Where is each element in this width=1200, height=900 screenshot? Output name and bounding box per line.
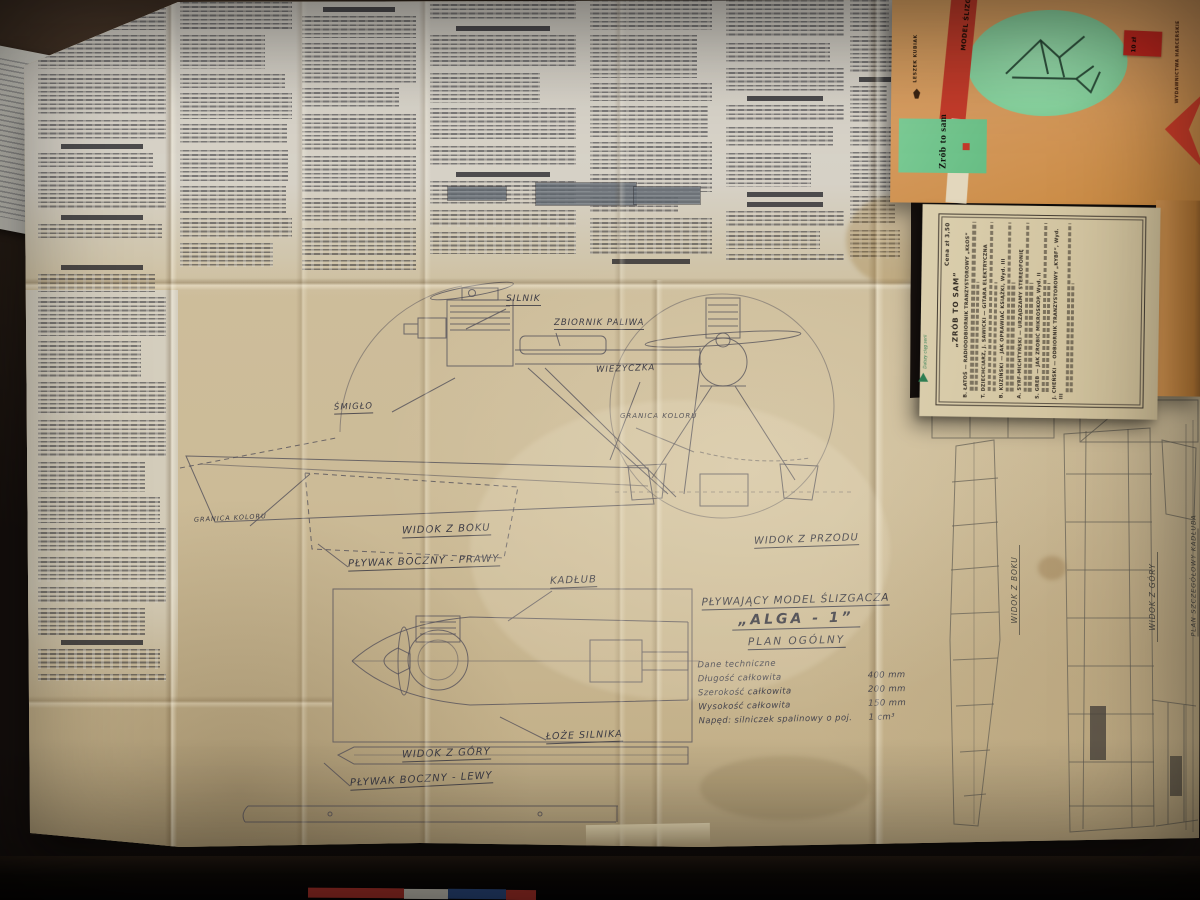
front-view-drawing (610, 294, 855, 518)
magazine-edge-sliver (506, 890, 536, 900)
text-paragraph (38, 462, 145, 492)
text-paragraph (180, 150, 288, 181)
text-paragraph (38, 35, 166, 69)
text-column (302, 2, 416, 274)
book-list-item: S. GREB — JAK ZROBIĆ MIKROSKOP, Wyd. II (1034, 223, 1052, 399)
mini-logo-note: Dalszy ciąg serii (922, 335, 927, 369)
book-list-item: B. KUZIŃSKI — JAK OPRAWIAĆ KSIĄŻKI, Wyd.… (998, 222, 1016, 398)
text-column (38, 260, 166, 690)
printed-photo-block (448, 187, 506, 200)
book-list-item-title: A. SYRF-MICHTYŃSKI — URZĄDZAMY STEREOFON… (1016, 223, 1025, 399)
book-list-item-desc (1070, 283, 1075, 392)
book-list-item-title: J. CHEŃSKI — ODBIORNIK TRANZYSTOROWY „KY… (1052, 223, 1067, 399)
section-heading-line (612, 259, 690, 264)
model-sketch (965, 7, 1129, 120)
text-paragraph (38, 587, 166, 603)
text-paragraph (302, 114, 416, 151)
text-paragraph (38, 274, 155, 292)
printed-photo-block (634, 187, 700, 204)
label-plywak-boczny-prawy: PŁYWAK BOCZNY - PRAWY (348, 553, 500, 571)
tech-data-label: Napęd: silniczek spalinowy o poj. (698, 713, 852, 726)
book-list-item: B. ŁATOŚ — RADIOODBIORNIK TRANZYSTOROWY … (963, 222, 981, 398)
text-paragraph (38, 172, 166, 210)
book-list-item-desc (1028, 283, 1033, 392)
tech-data-value: 400 mm (868, 670, 924, 681)
text-paragraph (726, 0, 844, 38)
section-heading-line (61, 640, 143, 645)
text-paragraph (38, 341, 141, 377)
text-paragraph (430, 35, 576, 68)
price-sticker-text: 10 zł (1131, 37, 1138, 53)
text-paragraph (38, 649, 160, 669)
label-detail-widok-z-boku: WIDOK Z BOKU (1010, 545, 1020, 635)
paper-highlight (470, 400, 890, 700)
label-detail-widok-z-gory: WIDOK Z GÓRY (1148, 552, 1158, 642)
text-paragraph (726, 231, 820, 249)
section-heading-line (747, 192, 823, 197)
label-widok-z-przodu: WIDOK Z PRZODU (754, 532, 859, 549)
tech-data-label: Szerokość całkowita (698, 686, 792, 698)
tech-data-rows: Długość całkowita 400 mm Szerokość całko… (698, 670, 925, 727)
text-paragraph (38, 557, 166, 582)
cover-ellipse-illustration (965, 7, 1129, 120)
text-paragraph (590, 106, 708, 137)
label-plywak-boczny-lewy: PŁYWAK BOCZNY - LEWY (350, 770, 493, 790)
back-cover-mini-logo: Dalszy ciąg serii (914, 329, 939, 395)
text-paragraph (430, 0, 576, 21)
book-list-item-desc (1024, 223, 1030, 392)
plan-title-line3: PLAN OGÓLNY (748, 634, 846, 651)
label-granica-koloru-right: GRANICA KOLORU (620, 412, 697, 420)
book-list-item: J. CHEŃSKI — ODBIORNIK TRANZYSTOROWY „KY… (1052, 223, 1076, 399)
text-paragraph (302, 43, 416, 83)
tech-data-row: Szerokość całkowita 200 mm (698, 684, 924, 699)
text-paragraph (302, 16, 416, 38)
section-heading-line (747, 96, 823, 101)
section-heading-line (456, 172, 549, 177)
detail-parts-drawings (932, 400, 1198, 832)
label-plan-szczegolowy-kadluba: PLAN SZCZEGÓŁOWY KADŁUBA (1190, 529, 1199, 637)
text-paragraph (430, 146, 576, 167)
tech-data-label: Długość całkowita (698, 673, 782, 685)
section-heading-line (61, 144, 143, 149)
logo-red-accent (963, 143, 970, 150)
text-paragraph (726, 68, 844, 91)
section-heading-line (323, 7, 396, 12)
text-paragraph (430, 232, 576, 254)
text-paragraph (180, 74, 285, 88)
text-paragraph (850, 196, 895, 225)
text-paragraph (850, 127, 895, 147)
label-silnik: SILNIK (506, 294, 541, 306)
paper-stain (1038, 556, 1066, 580)
text-paragraph (850, 0, 889, 31)
text-paragraph (180, 218, 292, 238)
text-paragraph (38, 382, 166, 415)
book-list-item-desc (970, 222, 976, 391)
text-paragraph (180, 243, 273, 267)
book-list-item-desc (974, 282, 979, 391)
book-list-item-title: B. KUZIŃSKI — JAK OPRAWIAĆ KSIĄŻKI, Wyd.… (998, 222, 1007, 398)
text-paragraph (590, 218, 712, 254)
book-list-item-desc (1065, 223, 1071, 392)
tech-data-row: Długość całkowita 400 mm (698, 670, 924, 685)
text-column (180, 2, 292, 274)
series-logo-text: Zrób to sam (938, 114, 949, 169)
text-column (590, 0, 712, 277)
tech-data-value: 150 mm (868, 698, 924, 709)
text-column (726, 0, 844, 278)
text-paragraph (726, 105, 844, 122)
tech-data-heading: Dane techniczne (697, 656, 923, 671)
label-smiglo: ŚMIGŁO (334, 401, 373, 414)
text-paragraph (38, 297, 166, 336)
text-paragraph (302, 156, 416, 193)
magazine-edge-sliver (404, 889, 448, 899)
section-heading-line (859, 77, 891, 82)
text-paragraph (180, 35, 265, 69)
text-paragraph (302, 228, 416, 255)
back-cover-book-list: B. ŁATOŚ — RADIOODBIORNIK TRANZYSTOROWY … (963, 219, 1076, 403)
text-paragraph (726, 211, 844, 226)
text-paragraph (38, 420, 166, 457)
book-list-item-desc (988, 222, 994, 391)
zrob-to-sam-booklet: MODEL ŚLIZGACZA „ALGA-1” LESZEK KUBIAK Z… (888, 0, 1200, 428)
mini-logo-triangle-icon (918, 373, 928, 382)
text-paragraph (180, 186, 286, 213)
booklet-cover-right-margin (1154, 200, 1200, 397)
label-wiezyczka: WIEŻYCZKA (596, 363, 656, 375)
text-paragraph (726, 254, 844, 260)
text-paragraph (302, 260, 416, 270)
tech-data-row: Wysokość całkowita 150 mm (698, 698, 924, 713)
label-loze-silnika: ŁOŻE SILNIKA (546, 729, 623, 745)
text-paragraph (850, 86, 887, 122)
book-list-item-title: S. GREB — JAK ZROBIĆ MIKROSKOP, Wyd. II (1034, 223, 1043, 399)
table-bottom-band (0, 856, 1200, 900)
text-paragraph (38, 224, 162, 238)
text-paragraph (302, 198, 416, 223)
plan-title-block: PŁYWAJĄCY MODEL ŚLIZGACZA „ALGA - 1” PLA… (687, 585, 905, 652)
magazine-edge-sliver (448, 889, 506, 899)
section-heading-line (61, 215, 143, 220)
text-paragraph (302, 88, 399, 109)
text-paragraph (180, 93, 292, 119)
section-heading-line (61, 265, 143, 270)
cover-red-arrow-icon (1158, 87, 1200, 173)
back-cover-price: Cena zł 3,50 (943, 222, 952, 400)
text-paragraph (590, 83, 712, 101)
text-paragraph (38, 153, 153, 167)
book-list-item: T. DZIECHCIARZ, J. SAWICKI — GITARA ELEK… (980, 222, 998, 398)
back-cover-series-heading: „ZRÓB TO SAM” (950, 219, 962, 401)
section-heading-line (456, 26, 549, 31)
text-paragraph (430, 210, 576, 227)
book-list-item-desc (992, 282, 997, 391)
text-paragraph (430, 108, 576, 141)
text-paragraph (590, 0, 712, 30)
label-widok-z-boku: WIDOK Z BOKU (402, 522, 491, 538)
text-paragraph (38, 608, 145, 635)
fold-crease (0, 696, 332, 708)
printed-photo-block (536, 183, 636, 205)
cover-author-text: LESZEK KUBIAK (913, 34, 919, 82)
tech-data-block: Dane techniczne Długość całkowita 400 mm… (697, 656, 924, 731)
text-paragraph (430, 73, 540, 103)
text-column (430, 0, 576, 276)
text-paragraph (38, 74, 166, 115)
text-column (38, 8, 166, 252)
text-paragraph (38, 674, 166, 681)
book-list-item-desc (1006, 222, 1012, 391)
text-paragraph (180, 124, 287, 145)
text-paragraph (726, 127, 833, 148)
label-widok-z-gory: WIDOK Z GÓRY (402, 746, 491, 762)
price-sticker: 10 zł (1123, 30, 1162, 57)
book-list-item-desc (1010, 282, 1015, 391)
back-cover-frame: Cena zł 3,50 „ZRÓB TO SAM” B. ŁATOŚ — RA… (935, 213, 1146, 408)
tech-data-value: 200 mm (868, 684, 924, 695)
book-list-item-desc (1046, 283, 1051, 392)
section-heading-line (747, 202, 823, 207)
text-paragraph (38, 497, 160, 523)
text-paragraph (726, 43, 830, 63)
text-paragraph (38, 120, 166, 139)
text-paragraph (726, 153, 811, 187)
book-list-item-title: B. ŁATOŚ — RADIOODBIORNIK TRANZYSTOROWY … (963, 222, 972, 398)
tech-data-value: 1 cm³ (868, 712, 924, 723)
text-paragraph (38, 528, 166, 552)
magazine-edge-sliver (308, 888, 404, 899)
book-list-item-title: T. DZIECHCIARZ, J. SAWICKI — GITARA ELEK… (980, 222, 989, 398)
label-zbiornik-paliwa: ZBIORNIK PALIWA (554, 318, 644, 330)
tech-data-label: Wysokość całkowita (698, 700, 791, 712)
text-paragraph (590, 35, 697, 78)
fold-crease (165, 0, 177, 900)
booklet-back-cover: Cena zł 3,50 „ZRÓB TO SAM” B. ŁATOŚ — RA… (919, 204, 1160, 420)
text-paragraph (590, 142, 712, 169)
label-granica-koloru-left: GRANICA KOLORU (194, 512, 267, 524)
paper-stain (700, 756, 870, 820)
photo-of-model-plan: SILNIK ZBIORNIK PALIWA WIEŻYCZKA GRANICA… (0, 0, 1200, 900)
text-paragraph (38, 8, 166, 30)
tech-data-row: Napęd: silniczek spalinowy o poj. 1 cm³ (698, 712, 924, 727)
series-logo-block: Zrób to sam (898, 118, 987, 173)
cover-author: LESZEK KUBIAK (903, 36, 918, 88)
text-paragraph (180, 2, 292, 30)
back-cover-content: Cena zł 3,50 „ZRÓB TO SAM” B. ŁATOŚ — RA… (941, 218, 1142, 403)
book-list-item-desc (1041, 223, 1047, 392)
book-list-item: A. SYRF-MICHTYŃSKI — URZĄDZAMY STEREOFON… (1016, 223, 1034, 399)
label-kadlub: KADŁUB (550, 574, 597, 589)
